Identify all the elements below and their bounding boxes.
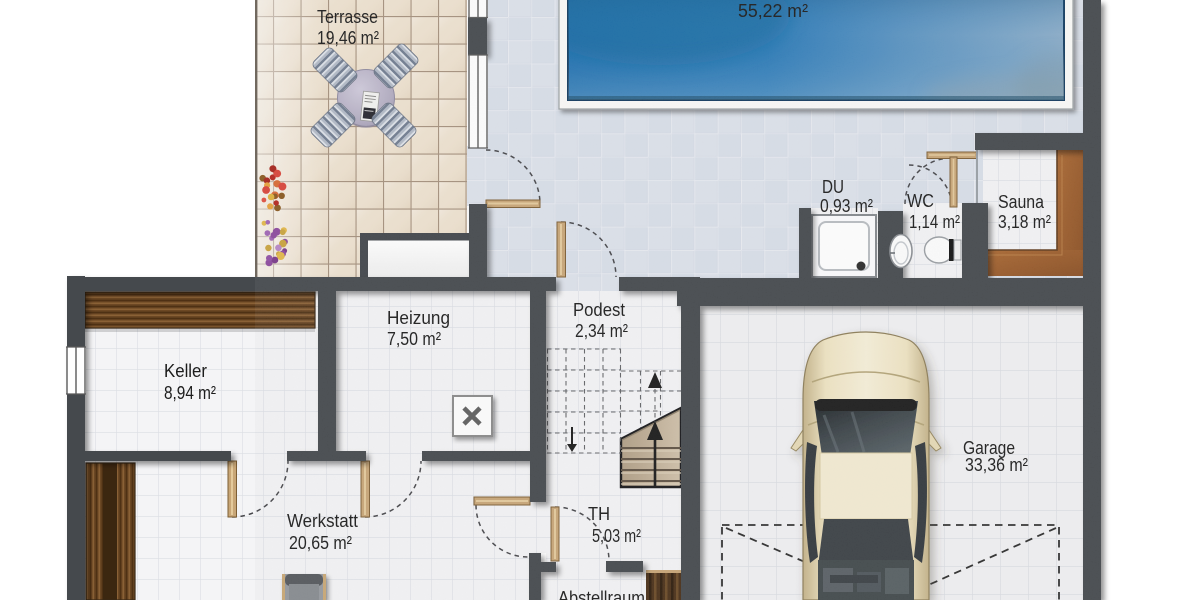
svg-text:8,94 m²: 8,94 m² xyxy=(164,382,216,403)
svg-text:Keller: Keller xyxy=(164,360,207,381)
